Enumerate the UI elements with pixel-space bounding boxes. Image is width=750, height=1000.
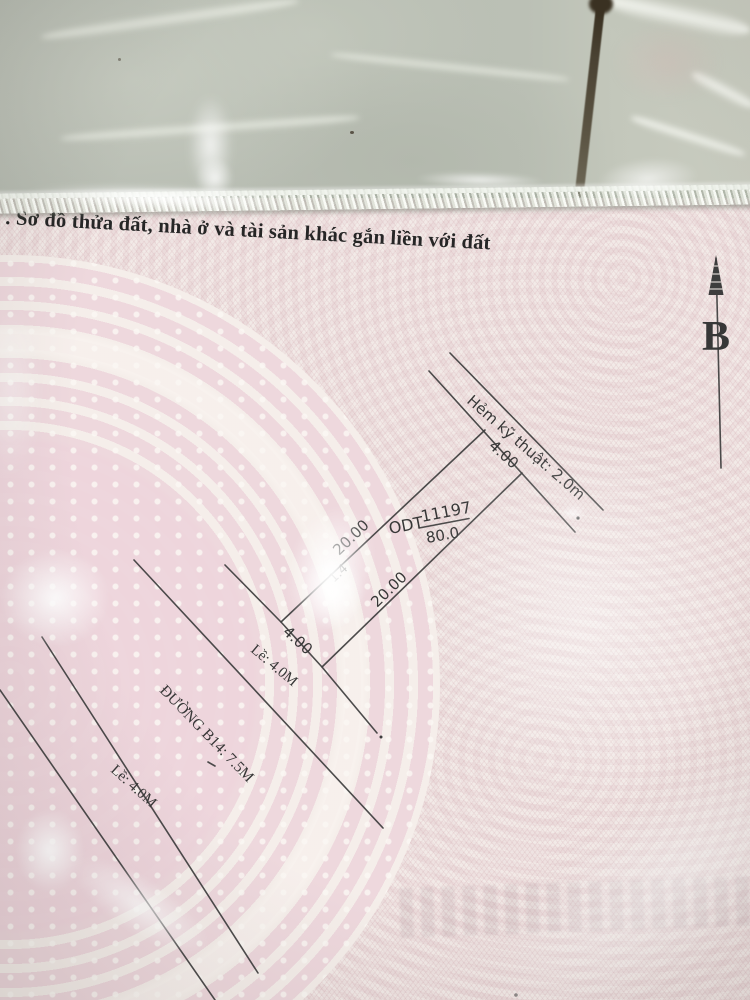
tile-stain xyxy=(612,22,722,102)
floor-speck xyxy=(350,131,354,134)
marble-vein xyxy=(40,0,299,44)
glare-spot xyxy=(300,555,365,630)
glare-spot xyxy=(0,548,110,648)
plastic-sheen xyxy=(420,430,750,810)
section-title: . Sơ đồ thửa đất, nhà ở và tài sản khác … xyxy=(5,207,565,259)
marble-vein xyxy=(629,112,747,160)
grout-debris xyxy=(589,0,613,14)
floor-speck xyxy=(118,58,121,61)
glare-spot xyxy=(196,158,234,198)
marble-vein xyxy=(330,49,570,84)
tile-grout-line xyxy=(574,0,606,197)
photo-of-land-certificate: . Sơ đồ thửa đất, nhà ở và tài sản khác … xyxy=(0,0,750,1000)
